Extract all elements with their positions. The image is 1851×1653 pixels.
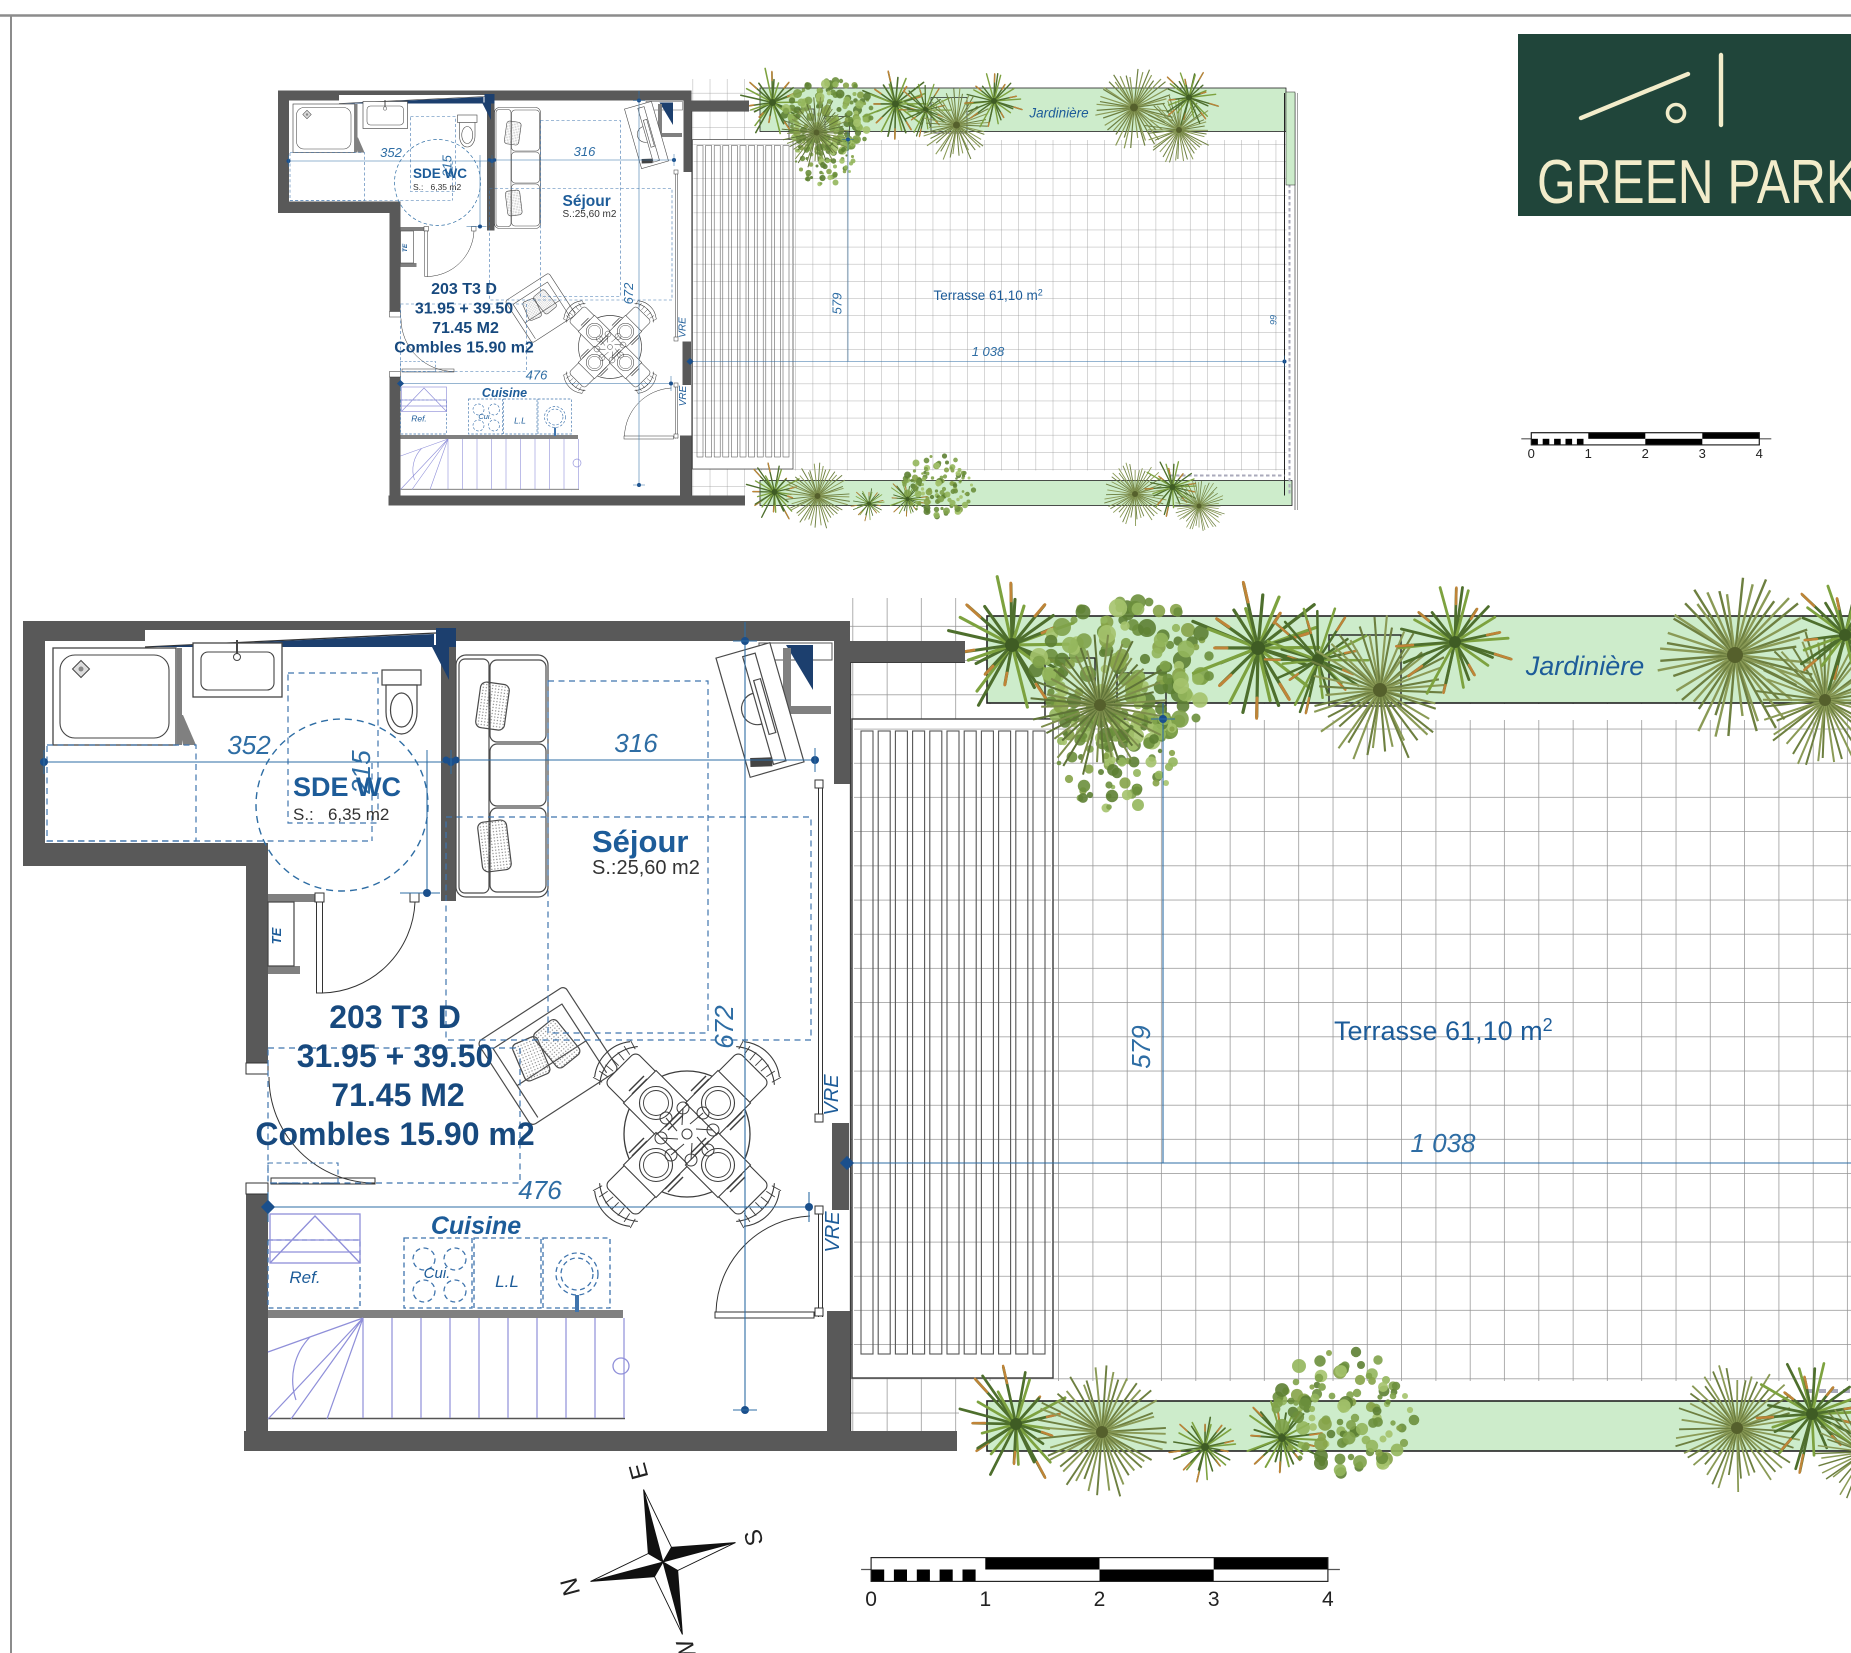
svg-text:3: 3 bbox=[1699, 446, 1706, 461]
svg-text:4: 4 bbox=[1322, 1588, 1334, 1611]
svg-text:4: 4 bbox=[1756, 446, 1763, 461]
svg-text:3: 3 bbox=[1208, 1588, 1220, 1611]
svg-text:2: 2 bbox=[1642, 446, 1649, 461]
svg-text:2: 2 bbox=[1094, 1588, 1106, 1611]
svg-text:S: S bbox=[739, 1526, 769, 1548]
svg-text:1: 1 bbox=[979, 1588, 991, 1611]
svg-text:GREEN PARK: GREEN PARK bbox=[1537, 148, 1851, 217]
svg-text:W: W bbox=[671, 1636, 703, 1653]
svg-text:N: N bbox=[555, 1575, 586, 1599]
svg-text:0: 0 bbox=[1528, 446, 1535, 461]
svg-text:1: 1 bbox=[1585, 446, 1592, 461]
svg-text:0: 0 bbox=[865, 1588, 877, 1611]
svg-text:E: E bbox=[624, 1460, 654, 1482]
